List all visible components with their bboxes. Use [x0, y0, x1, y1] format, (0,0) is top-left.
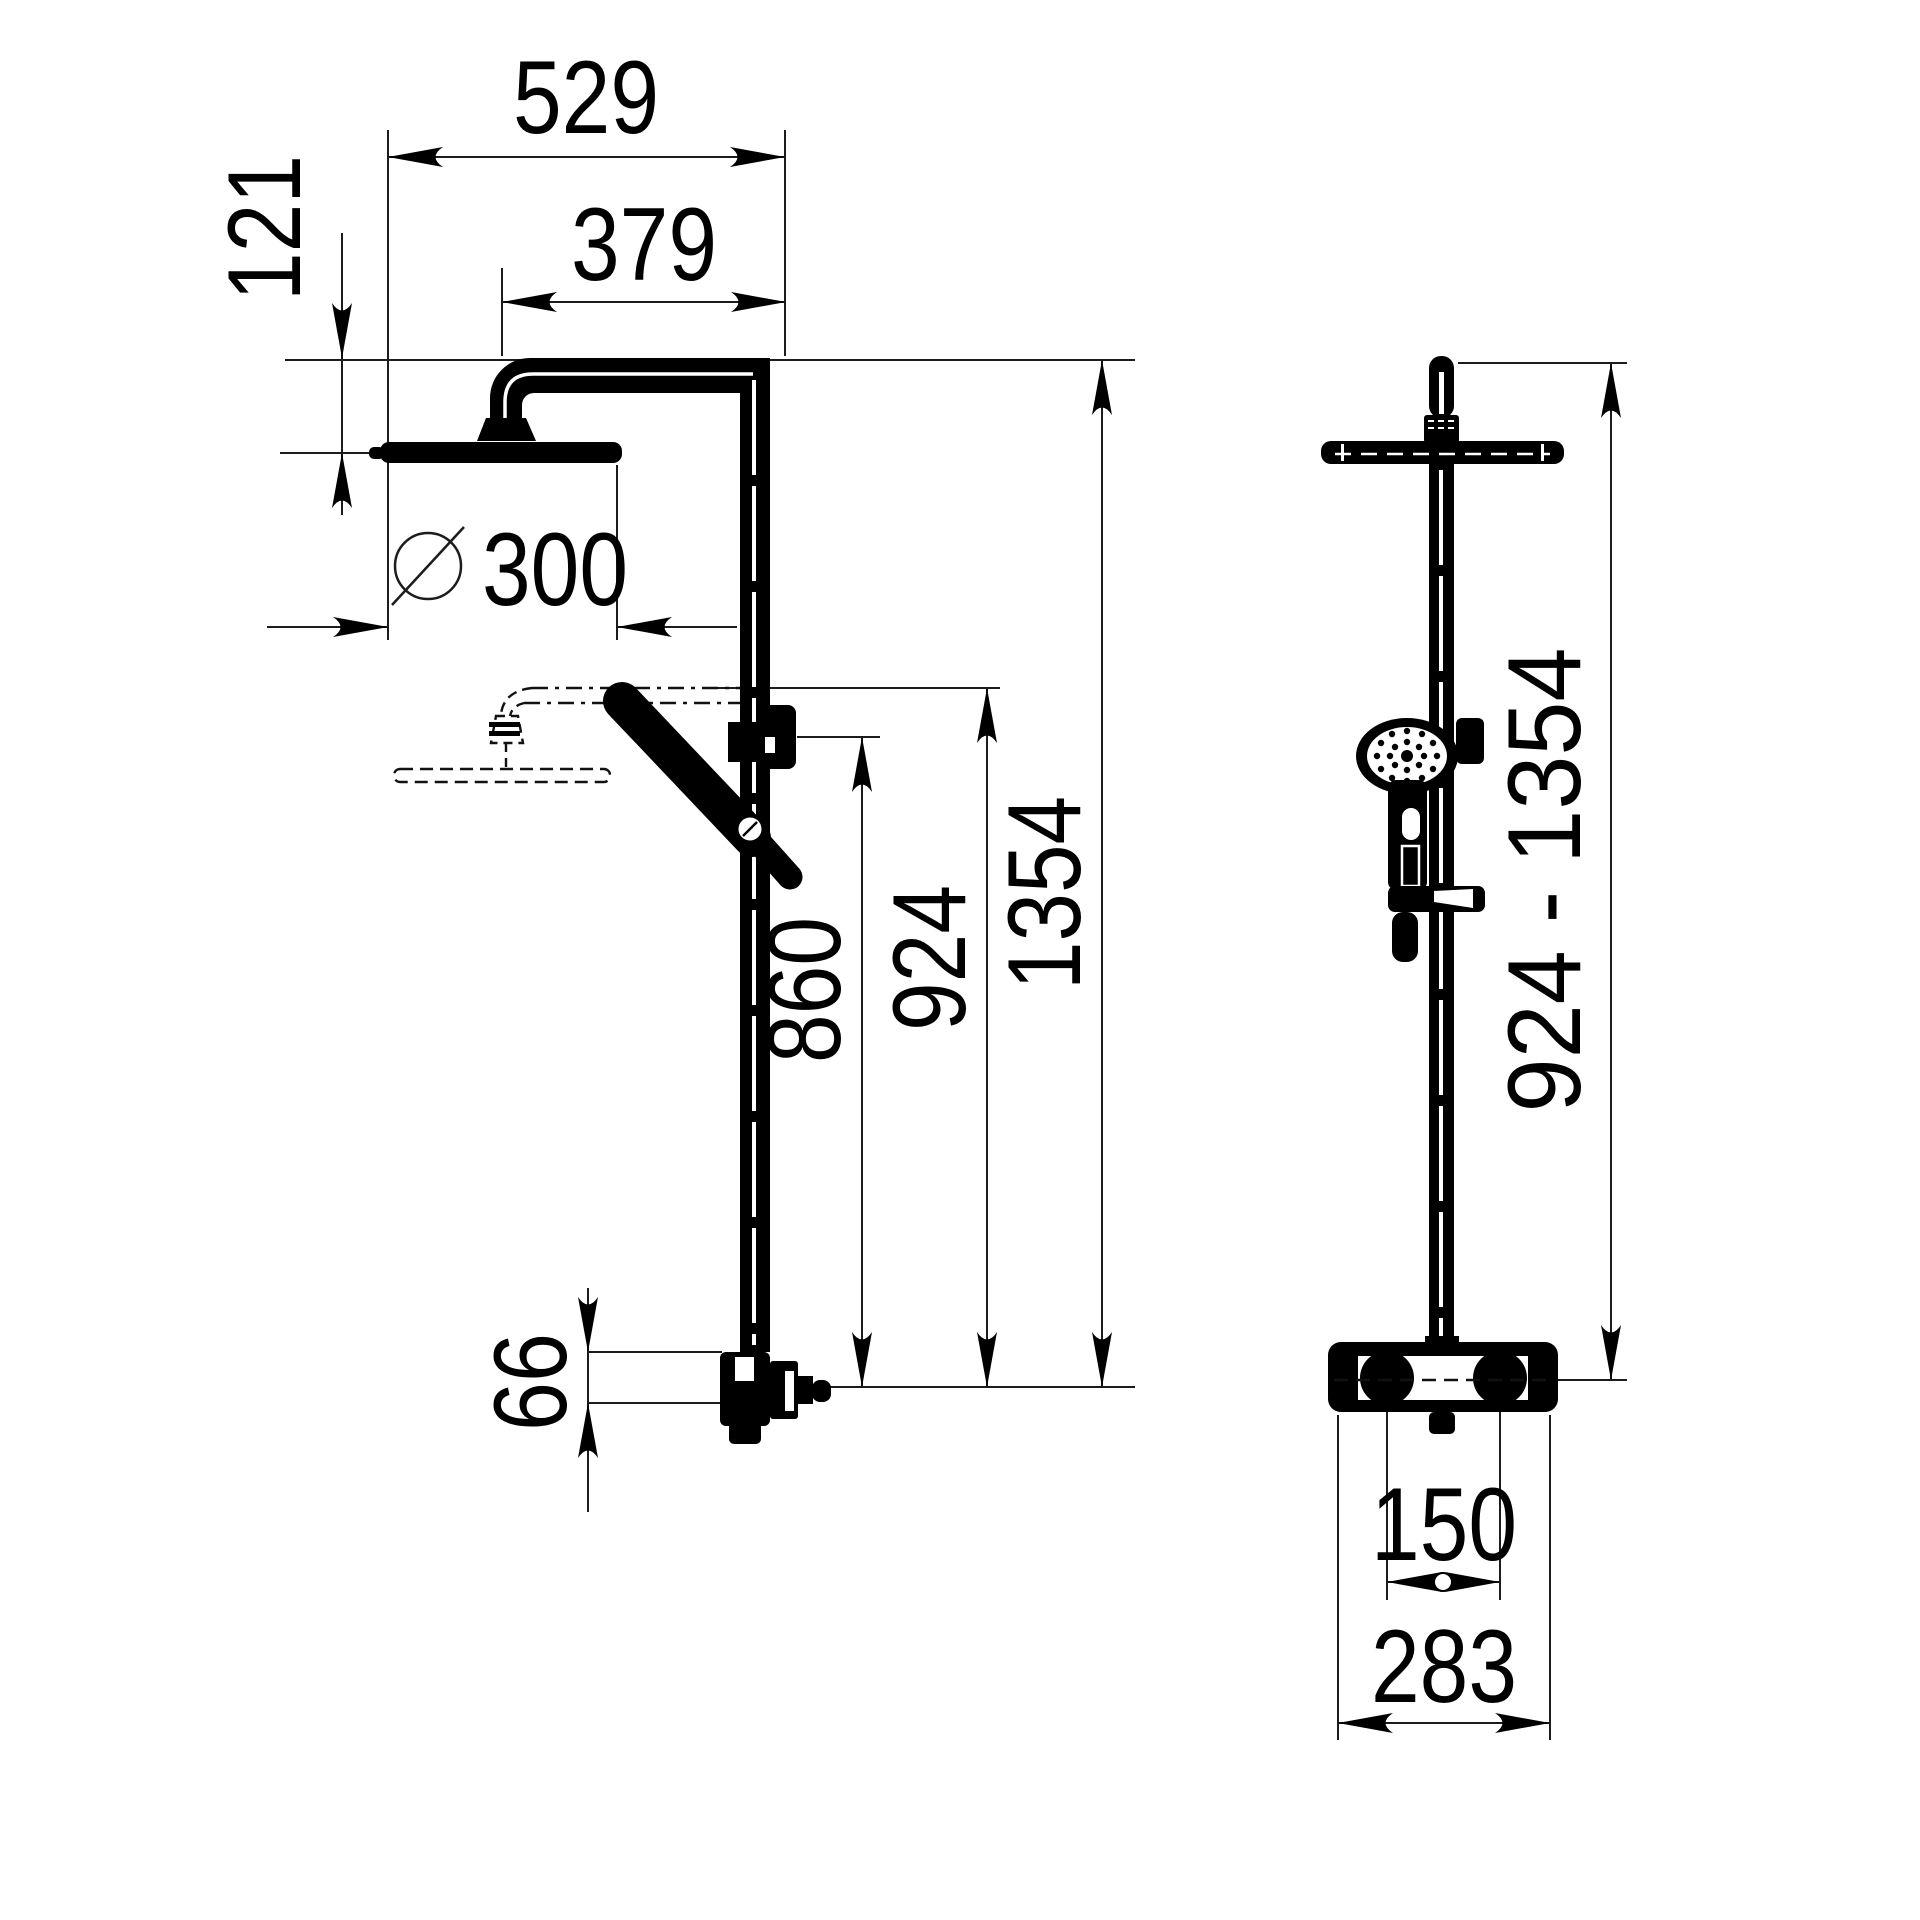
shower-system-dimension-drawing: 529 379 121 300 66 860 924 1354 924 - 13… — [0, 0, 1920, 1920]
overhead-head-edge — [1321, 441, 1564, 464]
head-connector — [477, 418, 536, 441]
shower-column-and-arm — [490, 358, 770, 1352]
diameter-symbol-icon — [392, 527, 464, 605]
dim-head-offset: 121 — [207, 155, 323, 301]
dim-min-height: 924 — [872, 885, 988, 1031]
dim-outlet-offset: 66 — [473, 1333, 589, 1431]
slider-holder-side — [1456, 718, 1484, 764]
dim-arm-reach: 379 — [571, 187, 717, 303]
dim-head-diameter: 300 — [482, 512, 628, 628]
overhead-shower-head — [380, 442, 622, 463]
technical-drawing-page: 529 379 121 300 66 860 924 1354 924 - 13… — [0, 0, 1920, 1920]
dim-connection-distance: 150 — [1371, 1467, 1517, 1583]
dim-total-height: 1354 — [987, 796, 1103, 990]
thermostat-valve-side — [1328, 1336, 1558, 1434]
dim-valve-width: 283 — [1371, 1609, 1517, 1725]
dim-height-range: 924 - 1354 — [1487, 648, 1603, 1113]
dim-total-width: 529 — [513, 40, 659, 156]
dim-rail-height: 860 — [747, 917, 863, 1063]
mixer-valve-front — [720, 1352, 831, 1444]
slider-holder-front — [728, 705, 796, 769]
